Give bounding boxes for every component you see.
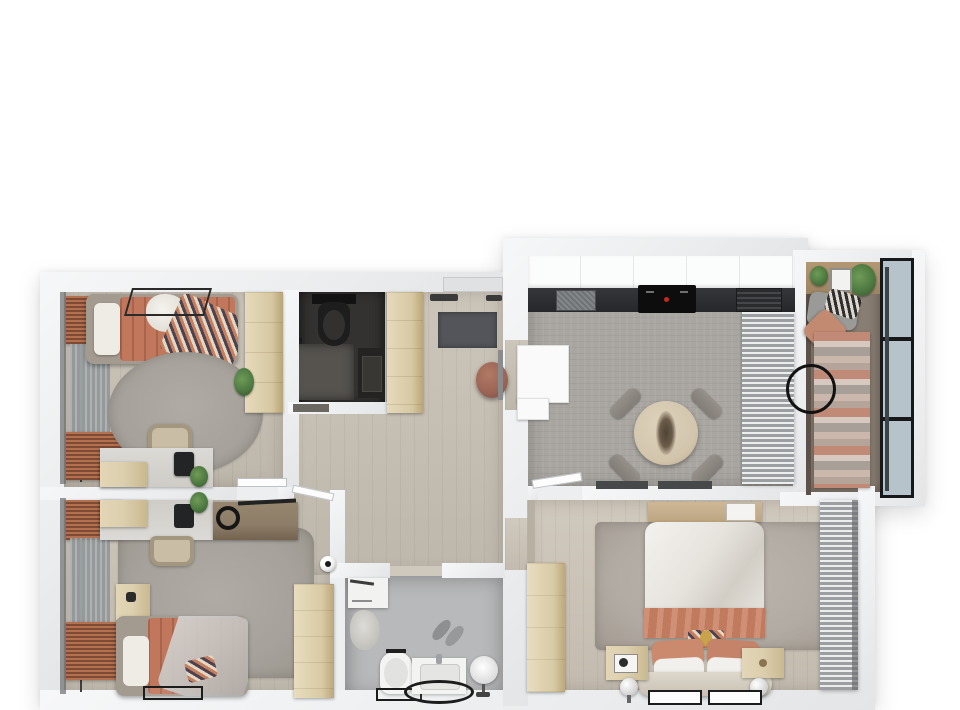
wall-bedroom1-right (283, 290, 299, 490)
master-lamp-left-base (627, 695, 631, 703)
bathroom-washer-cabinet (348, 578, 388, 608)
entry-wall-shelf (498, 350, 503, 400)
wc-floor-light-patch (292, 344, 354, 400)
bedroom1-door-leaf (237, 478, 287, 487)
bathroom-door-threshold (390, 566, 442, 576)
dining-table (634, 401, 698, 465)
vanity-faucet (436, 654, 442, 664)
bedroom2-bed (116, 616, 248, 696)
entry-wall-hook-b (486, 295, 502, 301)
wc-basin (362, 356, 382, 392)
entry-pouf (476, 362, 508, 398)
bathroom-towels (350, 610, 380, 650)
bedroom2-soccer-ball (320, 556, 336, 572)
master-curtain-edge (852, 500, 858, 690)
bedroom2-desk-plant (190, 492, 208, 513)
kitchen-built-in-appliance (736, 288, 782, 312)
bedroom2-nightstand (116, 584, 150, 620)
master-entry-threshold (505, 518, 528, 570)
master-duvet (645, 522, 764, 622)
bathroom-round-mirror (470, 656, 498, 684)
bathroom-oval-mat (404, 680, 474, 704)
bedroom2-desk-cabinet (100, 500, 147, 527)
toilet-seat (384, 658, 408, 688)
toilet-hinge (386, 649, 406, 653)
kitchen-upper-cabinets (528, 256, 795, 288)
table-centerpiece (656, 411, 676, 455)
bedroom1-desk-cabinet (100, 462, 147, 487)
cooktop-mark-b (680, 291, 688, 293)
entrance-door (443, 277, 503, 292)
wc-vanity (358, 348, 384, 398)
bedroom2-pillow (123, 636, 149, 686)
photo-detail (619, 658, 628, 667)
balcony-window-wall (880, 258, 914, 498)
nightstand-knob (759, 659, 767, 667)
entry-wardrobe (387, 292, 423, 413)
kitchen-door-mat-b (658, 481, 712, 489)
master-lamp-left (620, 678, 638, 696)
wall-bathroom-top-a (330, 563, 390, 578)
balcony-wire-table (786, 364, 836, 414)
wall-kitchen-top (503, 238, 808, 256)
master-nightstand-right (742, 648, 784, 678)
cooktop-mark-a (646, 291, 654, 293)
bedroom2-floor-mat (143, 686, 203, 700)
soccer-ball-patch (325, 561, 331, 567)
bedroom1-pillow (94, 303, 120, 355)
kitchen-white-counter-a (517, 345, 569, 403)
wall-master-right (858, 486, 875, 692)
wall-top-left-block (40, 272, 503, 292)
balcony-plant-a (810, 266, 828, 286)
bedroom2-headphones (216, 506, 240, 530)
bedroom2-curtain-bottom (66, 622, 122, 680)
wall-bathroom-top-b (442, 563, 505, 578)
wc-toilet (318, 302, 350, 346)
wall-center-spine (503, 238, 528, 706)
master-nightstand-left (606, 646, 648, 680)
bedroom2-desk-chair (150, 536, 194, 566)
bedroom2-clock (126, 592, 136, 602)
bedroom1-desk-plant (190, 466, 208, 487)
kitchen-sink (556, 290, 596, 311)
master-floor-frame-left (648, 690, 702, 705)
kitchen-sheer-curtains (742, 312, 794, 484)
washer-detail-line (350, 579, 374, 585)
wc-door-threshold (293, 404, 329, 412)
kitchen-door-mat-a (596, 481, 648, 489)
wc-toilet-seat (323, 310, 345, 340)
bedroom1-plant (234, 368, 254, 396)
master-wardrobe (527, 563, 565, 692)
entry-doormat (438, 312, 497, 348)
bathroom-mirror-base (476, 692, 490, 697)
kitchen-white-counter-b (517, 398, 549, 420)
cooktop-indicator (664, 297, 669, 302)
kitchen-cooktop (638, 285, 696, 313)
bedroom2-sheer-blind (70, 538, 110, 622)
entry-wall-hook-a (430, 294, 458, 301)
bedroom1-wardrobe (245, 292, 283, 413)
floor-plan-render (0, 0, 960, 710)
nightstand-photo (614, 654, 638, 673)
bedroom2-wardrobe (294, 584, 334, 698)
window-sash (885, 267, 889, 491)
washer-detail-line2 (352, 600, 372, 602)
balcony-plant-b (848, 264, 876, 296)
bedroom1-canopy-frame (124, 288, 212, 316)
master-floor-frame-right (708, 690, 762, 705)
